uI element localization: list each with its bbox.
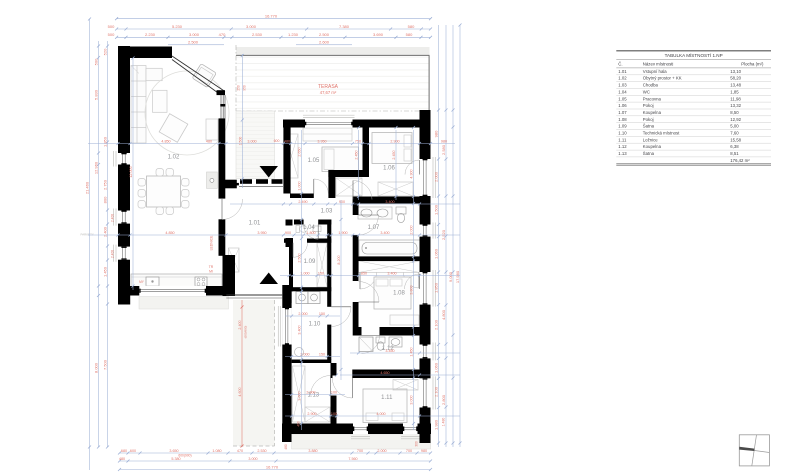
svg-text:1.900: 1.900 bbox=[338, 231, 347, 235]
svg-text:Ložnice: Ložnice bbox=[643, 137, 658, 142]
svg-text:21.460: 21.460 bbox=[84, 181, 89, 194]
svg-text:2.800: 2.800 bbox=[441, 394, 446, 405]
svg-text:150: 150 bbox=[319, 312, 325, 316]
svg-text:12,92: 12,92 bbox=[730, 117, 741, 122]
svg-text:480: 480 bbox=[206, 139, 212, 143]
svg-text:7.500: 7.500 bbox=[102, 359, 107, 370]
svg-text:3.800: 3.800 bbox=[409, 285, 413, 294]
svg-text:3.650: 3.650 bbox=[169, 449, 178, 453]
svg-text:1.05: 1.05 bbox=[618, 96, 627, 101]
svg-text:2.530: 2.530 bbox=[252, 32, 263, 37]
svg-text:9.000: 9.000 bbox=[448, 271, 453, 282]
svg-text:176,42 m²: 176,42 m² bbox=[730, 158, 750, 163]
svg-text:400: 400 bbox=[297, 421, 301, 427]
svg-text:500: 500 bbox=[108, 24, 115, 29]
svg-text:1.03: 1.03 bbox=[618, 83, 627, 88]
svg-text:Plocha (m²): Plocha (m²) bbox=[741, 62, 764, 67]
svg-text:2.600: 2.600 bbox=[319, 40, 330, 45]
svg-text:1.11: 1.11 bbox=[381, 395, 393, 401]
svg-text:1.500: 1.500 bbox=[238, 137, 242, 146]
svg-text:(600/900): (600/900) bbox=[244, 326, 248, 339]
svg-text:5.830: 5.830 bbox=[93, 89, 98, 100]
svg-text:2.750: 2.750 bbox=[102, 179, 107, 190]
svg-text:680: 680 bbox=[121, 449, 127, 453]
svg-text:13,10: 13,10 bbox=[730, 69, 741, 74]
svg-text:5,00: 5,00 bbox=[730, 124, 739, 129]
svg-text:Pokoj: Pokoj bbox=[643, 103, 654, 108]
svg-text:1.060: 1.060 bbox=[434, 248, 439, 259]
svg-text:2.520: 2.520 bbox=[441, 229, 446, 240]
svg-text:2.000: 2.000 bbox=[298, 312, 307, 316]
svg-text:1.02: 1.02 bbox=[618, 76, 627, 81]
svg-text:500: 500 bbox=[108, 32, 115, 37]
svg-text:1.02: 1.02 bbox=[168, 155, 180, 161]
svg-text:1.230: 1.230 bbox=[288, 32, 299, 37]
svg-text:1.07: 1.07 bbox=[368, 225, 380, 231]
svg-text:480: 480 bbox=[284, 139, 290, 143]
svg-text:1.08: 1.08 bbox=[618, 117, 627, 122]
svg-text:2.100: 2.100 bbox=[434, 386, 439, 397]
svg-text:750: 750 bbox=[355, 139, 361, 143]
svg-text:3.000: 3.000 bbox=[246, 24, 257, 29]
svg-text:Šatna: Šatna bbox=[643, 151, 655, 156]
svg-text:7.560: 7.560 bbox=[348, 457, 357, 461]
svg-text:Koupelna: Koupelna bbox=[643, 110, 662, 115]
svg-text:1.500: 1.500 bbox=[434, 204, 439, 215]
svg-text:1.08: 1.08 bbox=[393, 291, 405, 297]
svg-text:150: 150 bbox=[319, 352, 325, 356]
svg-text:12.000: 12.000 bbox=[129, 166, 133, 177]
svg-text:1.480: 1.480 bbox=[442, 418, 446, 427]
svg-text:16.770: 16.770 bbox=[265, 14, 278, 19]
svg-text:8.200: 8.200 bbox=[337, 255, 341, 264]
svg-text:3.950: 3.950 bbox=[317, 139, 326, 143]
svg-text:4.800: 4.800 bbox=[441, 309, 446, 320]
svg-text:2.000: 2.000 bbox=[377, 449, 386, 453]
svg-text:11,98: 11,98 bbox=[730, 96, 741, 101]
svg-text:Vstupní hala: Vstupní hala bbox=[643, 69, 667, 74]
svg-text:3.400: 3.400 bbox=[387, 271, 396, 275]
svg-text:2.000: 2.000 bbox=[434, 171, 439, 182]
svg-text:TABULKA MÍSTNOSTÍ 1.NP: TABULKA MÍSTNOSTÍ 1.NP bbox=[665, 52, 723, 58]
svg-text:4.000: 4.000 bbox=[376, 412, 385, 416]
svg-text:13,32: 13,32 bbox=[730, 103, 741, 108]
svg-text:2.400: 2.400 bbox=[102, 226, 107, 237]
svg-text:2.500: 2.500 bbox=[188, 40, 199, 45]
svg-text:600: 600 bbox=[274, 139, 280, 143]
svg-text:1.800: 1.800 bbox=[306, 231, 315, 235]
svg-text:LEDNICE: LEDNICE bbox=[210, 235, 214, 250]
svg-text:2.900: 2.900 bbox=[390, 139, 399, 143]
svg-text:700: 700 bbox=[406, 449, 412, 453]
svg-text:980: 980 bbox=[434, 130, 439, 137]
svg-text:PARKETY: PARKETY bbox=[81, 233, 94, 237]
svg-text:1.09: 1.09 bbox=[304, 259, 316, 265]
svg-text:1.10: 1.10 bbox=[309, 322, 321, 328]
svg-text:1.850: 1.850 bbox=[434, 282, 439, 293]
svg-text:500: 500 bbox=[93, 58, 98, 65]
svg-text:1.07: 1.07 bbox=[618, 110, 627, 115]
svg-text:1.450: 1.450 bbox=[409, 347, 413, 356]
svg-text:800: 800 bbox=[102, 196, 107, 203]
svg-text:1.05: 1.05 bbox=[308, 158, 320, 164]
svg-text:3.950: 3.950 bbox=[257, 231, 266, 235]
svg-text:3.400: 3.400 bbox=[380, 231, 389, 235]
svg-text:3.000: 3.000 bbox=[189, 32, 200, 37]
svg-text:2.230: 2.230 bbox=[145, 32, 156, 37]
svg-text:150: 150 bbox=[318, 271, 324, 275]
svg-text:TR: TR bbox=[209, 265, 214, 269]
svg-text:900: 900 bbox=[339, 200, 345, 204]
svg-text:2.490: 2.490 bbox=[298, 200, 307, 204]
svg-text:17.980: 17.980 bbox=[455, 270, 460, 283]
svg-text:1.03: 1.03 bbox=[321, 209, 333, 215]
svg-text:2.100: 2.100 bbox=[434, 319, 439, 330]
svg-text:Chodba: Chodba bbox=[643, 83, 659, 88]
svg-text:1.850: 1.850 bbox=[102, 136, 107, 147]
svg-text:Pracovna: Pracovna bbox=[643, 96, 662, 101]
svg-text:1.13: 1.13 bbox=[618, 151, 627, 156]
svg-text:2.900: 2.900 bbox=[306, 390, 315, 394]
svg-text:600(900): 600(900) bbox=[178, 454, 191, 458]
svg-text:2.400: 2.400 bbox=[111, 214, 115, 222]
svg-text:5.230: 5.230 bbox=[172, 24, 183, 29]
svg-text:3.400: 3.400 bbox=[297, 325, 301, 334]
svg-text:16.770: 16.770 bbox=[266, 464, 279, 469]
svg-text:580: 580 bbox=[406, 32, 413, 37]
svg-text:480: 480 bbox=[119, 457, 125, 461]
svg-text:470: 470 bbox=[219, 32, 226, 37]
svg-text:Šatna: Šatna bbox=[643, 124, 655, 129]
svg-text:980: 980 bbox=[421, 449, 427, 453]
svg-text:100: 100 bbox=[331, 390, 337, 394]
svg-text:8,51: 8,51 bbox=[730, 151, 739, 156]
svg-text:2.450: 2.450 bbox=[354, 150, 358, 159]
svg-text:3.000: 3.000 bbox=[247, 139, 256, 143]
svg-text:Koupelna: Koupelna bbox=[643, 144, 662, 149]
svg-text:12.960: 12.960 bbox=[93, 161, 98, 174]
svg-text:2.400: 2.400 bbox=[111, 250, 115, 258]
svg-text:480: 480 bbox=[284, 444, 288, 450]
svg-text:1.10: 1.10 bbox=[618, 131, 627, 136]
svg-text:MI: MI bbox=[209, 270, 213, 274]
svg-text:4.850: 4.850 bbox=[161, 139, 170, 143]
svg-text:3.400: 3.400 bbox=[385, 200, 394, 204]
svg-text:3.880: 3.880 bbox=[308, 449, 317, 453]
svg-text:1.000: 1.000 bbox=[297, 181, 301, 190]
svg-text:950: 950 bbox=[243, 85, 247, 91]
svg-text:2.500: 2.500 bbox=[297, 253, 301, 262]
svg-text:15,58: 15,58 bbox=[730, 137, 741, 142]
svg-text:1.04: 1.04 bbox=[618, 89, 627, 94]
svg-text:3.000: 3.000 bbox=[409, 395, 413, 404]
svg-text:4.600: 4.600 bbox=[238, 387, 242, 396]
svg-text:Pokoj: Pokoj bbox=[643, 117, 654, 122]
svg-text:2.500: 2.500 bbox=[319, 32, 330, 37]
svg-text:3.000: 3.000 bbox=[248, 457, 257, 461]
svg-text:850: 850 bbox=[361, 271, 367, 275]
svg-text:47,67 m²: 47,67 m² bbox=[320, 90, 337, 95]
svg-text:3.450: 3.450 bbox=[385, 349, 394, 353]
svg-text:8.000: 8.000 bbox=[93, 362, 98, 373]
svg-text:1.11: 1.11 bbox=[618, 137, 627, 142]
svg-text:1.09: 1.09 bbox=[618, 124, 627, 129]
svg-text:2.000: 2.000 bbox=[409, 225, 413, 234]
svg-text:2.450: 2.450 bbox=[392, 150, 396, 159]
svg-text:100: 100 bbox=[331, 412, 337, 416]
svg-text:1.01: 1.01 bbox=[249, 221, 261, 227]
svg-text:1.060: 1.060 bbox=[434, 362, 439, 373]
svg-text:WC: WC bbox=[643, 89, 650, 94]
svg-text:250: 250 bbox=[237, 85, 241, 91]
svg-text:Obytný prostor + KK: Obytný prostor + KK bbox=[643, 76, 682, 81]
svg-text:4.300: 4.300 bbox=[409, 169, 413, 178]
svg-text:1.080: 1.080 bbox=[212, 449, 221, 453]
svg-text:8,50: 8,50 bbox=[730, 110, 739, 115]
svg-text:580: 580 bbox=[408, 24, 415, 29]
svg-text:900: 900 bbox=[285, 231, 291, 235]
svg-text:2.530: 2.530 bbox=[257, 449, 266, 453]
svg-text:980: 980 bbox=[441, 139, 447, 143]
svg-text:600: 600 bbox=[130, 449, 136, 453]
svg-text:470: 470 bbox=[237, 449, 243, 453]
svg-text:2.650: 2.650 bbox=[297, 147, 301, 156]
svg-text:Č.: Č. bbox=[618, 62, 622, 67]
svg-text:1.06: 1.06 bbox=[383, 165, 395, 171]
svg-text:2.580: 2.580 bbox=[441, 144, 446, 155]
svg-text:1.980: 1.980 bbox=[434, 419, 439, 430]
svg-text:1.12: 1.12 bbox=[618, 144, 627, 149]
svg-text:4.850: 4.850 bbox=[165, 231, 174, 235]
svg-text:700: 700 bbox=[357, 449, 363, 453]
svg-text:7,60: 7,60 bbox=[730, 131, 739, 136]
svg-text:6,38: 6,38 bbox=[730, 144, 739, 149]
svg-text:58,20: 58,20 bbox=[730, 76, 741, 81]
svg-text:1.01: 1.01 bbox=[618, 69, 627, 74]
svg-text:3.690: 3.690 bbox=[373, 32, 384, 37]
svg-text:1,85: 1,85 bbox=[730, 89, 739, 94]
svg-text:300: 300 bbox=[415, 441, 419, 447]
svg-text:1.450: 1.450 bbox=[102, 266, 107, 277]
svg-text:4.650: 4.650 bbox=[380, 371, 389, 375]
svg-text:Technická místnost: Technická místnost bbox=[643, 131, 680, 136]
svg-text:2.900: 2.900 bbox=[307, 412, 316, 416]
svg-text:520: 520 bbox=[102, 48, 107, 55]
svg-text:13,48: 13,48 bbox=[730, 83, 741, 88]
svg-text:1.06: 1.06 bbox=[618, 103, 627, 108]
svg-text:2.400: 2.400 bbox=[238, 320, 242, 329]
svg-text:Název místnosti: Název místnosti bbox=[643, 62, 674, 67]
svg-text:3.600: 3.600 bbox=[297, 391, 301, 400]
svg-text:7.380: 7.380 bbox=[339, 24, 350, 29]
